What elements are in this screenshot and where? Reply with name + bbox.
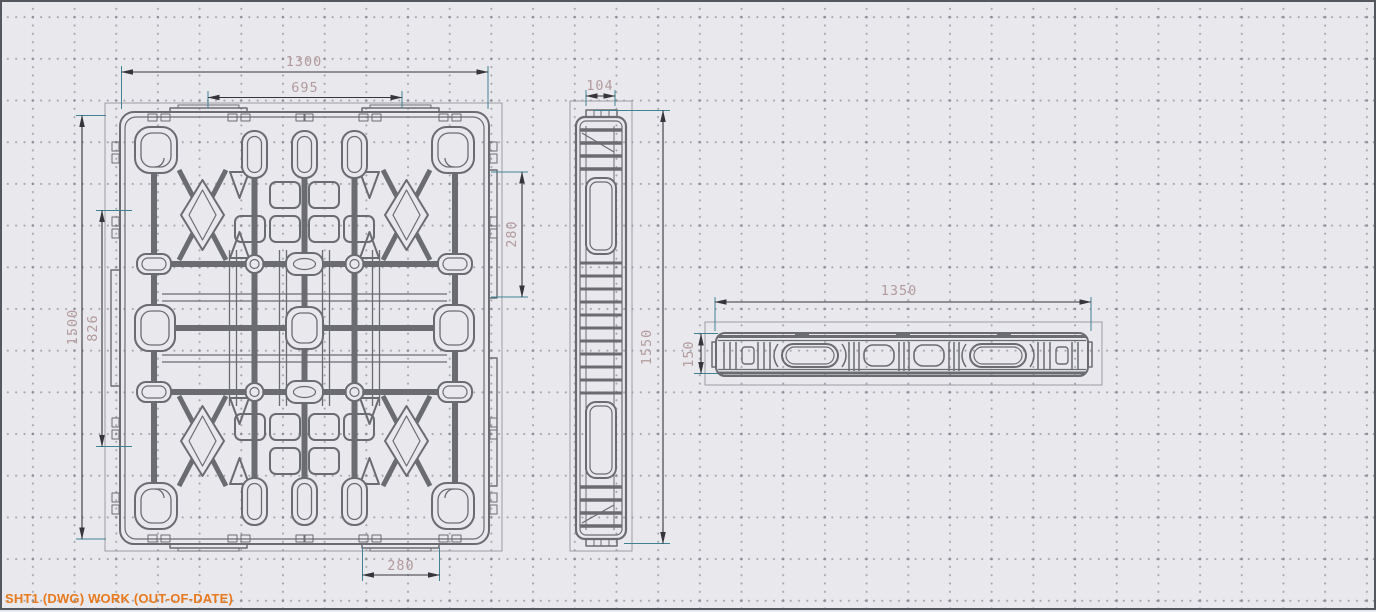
- dim-label-end-height: 1550: [639, 329, 655, 366]
- dimensions: 1300 695 1500 826 280 280 104 1550 1350 …: [65, 54, 1091, 581]
- dim-label-thickness: 104: [586, 78, 613, 94]
- dim-label-side-pocket: 280: [504, 220, 520, 247]
- dim-label-front-height: 150: [681, 340, 697, 367]
- end-elevation-view: [576, 110, 626, 546]
- dim-label-inner-height: 826: [85, 314, 101, 341]
- cad-application-window: { "status_bar": { "text": "SHT1 (DWG) WO…: [0, 0, 1376, 610]
- dim-label-inner-width: 695: [291, 80, 318, 96]
- dim-label-bottom-pocket: 280: [387, 558, 414, 574]
- dim-label-overall-height: 1500: [65, 309, 81, 346]
- extension-line-826: [96, 211, 132, 447]
- drawing-canvas[interactable]: 1300 695 1500 826 280 280 104 1550 1350 …: [2, 2, 1376, 612]
- dim-label-overall-length: 1350: [881, 283, 918, 299]
- front-elevation-view: [712, 333, 1092, 376]
- dim-label-overall-width: 1300: [286, 54, 323, 70]
- plan-view: [111, 105, 497, 551]
- status-text: SHT1 (DWG) WORK (OUT-OF-DATE): [5, 591, 233, 606]
